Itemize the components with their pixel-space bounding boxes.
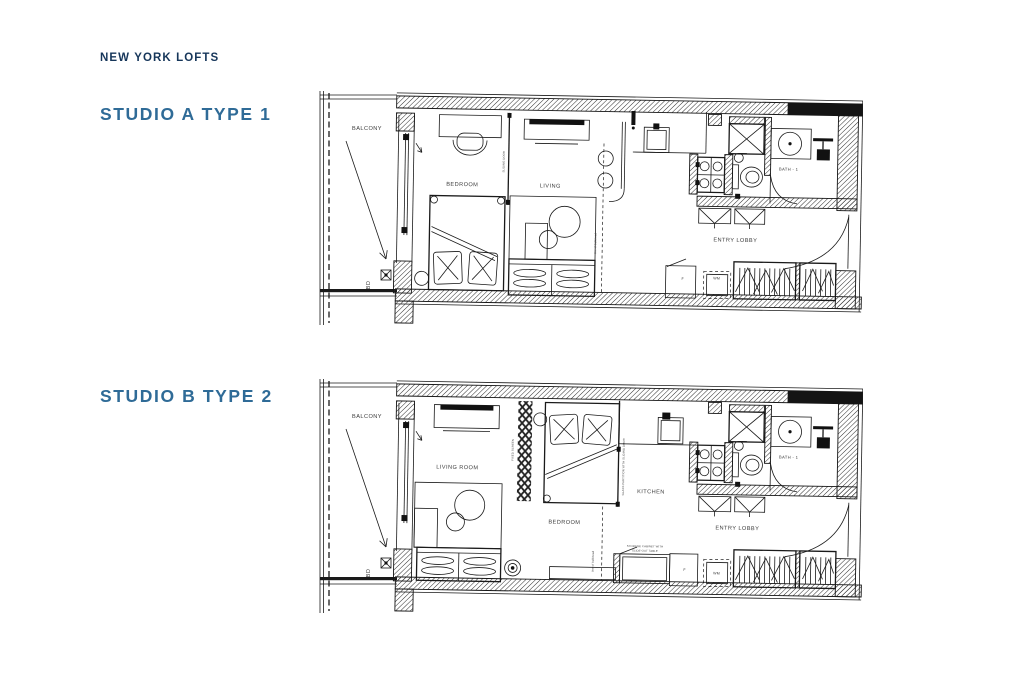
bottom-wall <box>395 289 861 309</box>
shower-tray <box>729 405 765 443</box>
storage-cabinet: line of bulkhead STORAGE CABINET WITH SL… <box>590 506 670 583</box>
shower-tray <box>729 117 765 155</box>
bath-basin <box>771 416 812 447</box>
stool <box>415 271 429 285</box>
bd-label: BD <box>366 281 372 290</box>
balcony-zone: BALCONY BD <box>320 379 397 613</box>
plan-b-title: STUDIO B TYPE 2 <box>100 386 273 407</box>
balcony-label: BALCONY <box>352 126 382 132</box>
living-room-label: LIVING ROOM <box>436 465 478 472</box>
balcony-edge <box>320 289 397 292</box>
living-label: LIVING <box>540 183 561 189</box>
sliding-door: SLIDING DOOR <box>501 113 512 205</box>
bd-label: BD <box>366 569 372 578</box>
entry-lobby-label: ENTRY LOBBY <box>713 237 757 244</box>
fixed-screen: FIXED SCREEN <box>510 401 533 501</box>
shower-head-icon <box>813 138 833 160</box>
right-wall-lower <box>835 559 856 597</box>
floor-drain-icon <box>381 270 391 280</box>
right-wall-upper <box>837 404 859 499</box>
entry-door <box>785 214 849 270</box>
vanity <box>697 196 858 231</box>
balcony-drain-arrow <box>346 141 387 259</box>
fridge: F <box>665 259 696 299</box>
bed <box>543 402 619 503</box>
floor-drain-icon <box>381 558 391 568</box>
bedroom-label: BEDROOM <box>446 182 478 189</box>
unit-studio-b: LIVING ROOM FIXED SCREEN <box>393 381 863 618</box>
balcony-zone: BALCONY BD <box>320 91 397 325</box>
tv-unit <box>434 405 499 432</box>
entry-lobby-label: ENTRY LOBBY <box>715 525 759 532</box>
living-table <box>414 482 502 549</box>
toilet <box>732 153 763 199</box>
bath-label: BATH - 1 <box>779 167 799 172</box>
floor-plan-studio-a: BALCONY BD <box>318 85 863 330</box>
bath-label: BATH - 1 <box>779 455 799 460</box>
wc-wall <box>764 117 771 175</box>
tv-unit <box>524 119 589 144</box>
bed <box>428 195 505 290</box>
living-table <box>509 196 596 260</box>
fixed-screen-label: FIXED SCREEN <box>510 439 514 461</box>
wc-wall <box>764 405 771 463</box>
plan-a-title: STUDIO A TYPE 1 <box>100 104 271 125</box>
entry-door <box>785 502 849 558</box>
bedroom-label: BEDROOM <box>548 520 580 527</box>
storage-label-2: SLIDE-OUT TABLE <box>632 549 658 553</box>
toilet <box>732 441 763 487</box>
right-wall-upper <box>837 116 859 211</box>
glass-partition-label: GLASS PARTITION WITH SLIDING DOOR <box>621 438 626 495</box>
fridge-label: F <box>681 277 684 281</box>
kitchen-label: KITCHEN <box>637 489 665 495</box>
top-wall-dark <box>788 103 863 116</box>
stove <box>689 154 733 195</box>
desk <box>439 115 502 156</box>
fridge: F <box>669 554 698 586</box>
washer-label: WM <box>713 276 720 280</box>
balcony-label: BALCONY <box>352 414 382 420</box>
bulkhead-note: line of bulkhead <box>593 232 597 254</box>
unit-studio-a: BEDROOM SLIDING DOOR <box>393 93 863 330</box>
fridge-label: F <box>683 568 686 572</box>
top-wall-dark <box>788 391 863 404</box>
round-stool <box>504 560 520 576</box>
shower-head-icon <box>813 426 833 448</box>
brand-title: NEW YORK LOFTS <box>100 52 219 64</box>
balcony-drain-arrow <box>346 429 387 547</box>
stove <box>689 442 733 483</box>
bench <box>549 567 615 580</box>
balcony-edge <box>320 577 397 580</box>
bulkhead-note: line of bulkhead <box>591 550 595 572</box>
kitchen-counter <box>619 401 722 446</box>
washer-label: WM <box>713 571 720 575</box>
vanity <box>697 484 858 519</box>
floor-plan-studio-b: BALCONY BD <box>318 373 863 618</box>
right-wall-lower <box>835 271 856 309</box>
bath-basin <box>771 128 812 159</box>
sliding-door-label: SLIDING DOOR <box>501 151 505 173</box>
sofa <box>416 547 501 581</box>
